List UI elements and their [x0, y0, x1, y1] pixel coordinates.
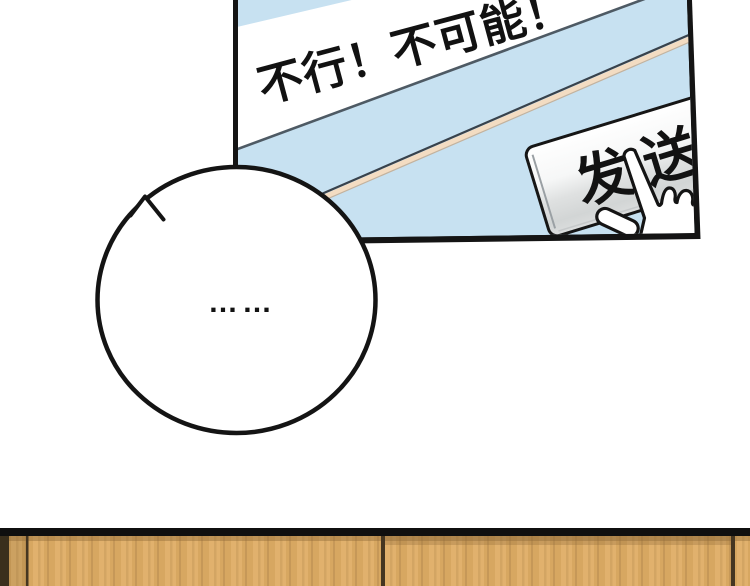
floor-plank-separator	[26, 536, 29, 586]
floor-plank-separator	[381, 536, 385, 586]
wooden-floor	[0, 528, 750, 586]
speech-bubble: ……	[98, 167, 376, 433]
comic-panel-page: 不行！不可能！ 发送	[0, 0, 750, 586]
floor-top-line	[0, 528, 750, 536]
floor-left-edge	[0, 536, 9, 586]
floor-top-shadow-right	[383, 536, 731, 545]
floor-plank-separator	[731, 536, 735, 586]
speech-bubble-text: ……	[208, 286, 276, 319]
